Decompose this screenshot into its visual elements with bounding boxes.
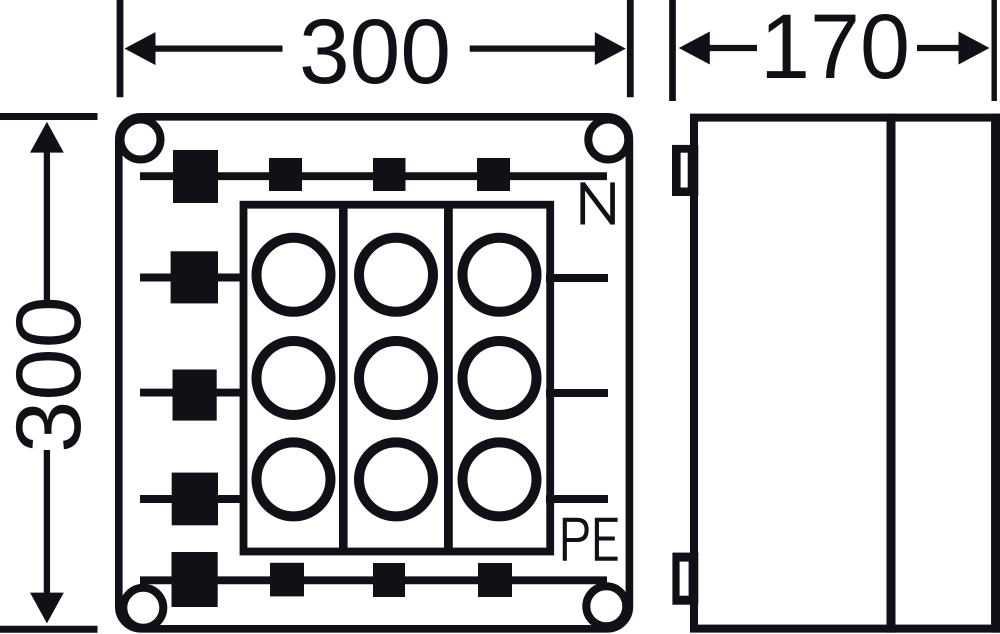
svg-text:300: 300 — [0, 296, 100, 453]
svg-text:170: 170 — [760, 0, 910, 98]
svg-text:300: 300 — [299, 1, 451, 103]
